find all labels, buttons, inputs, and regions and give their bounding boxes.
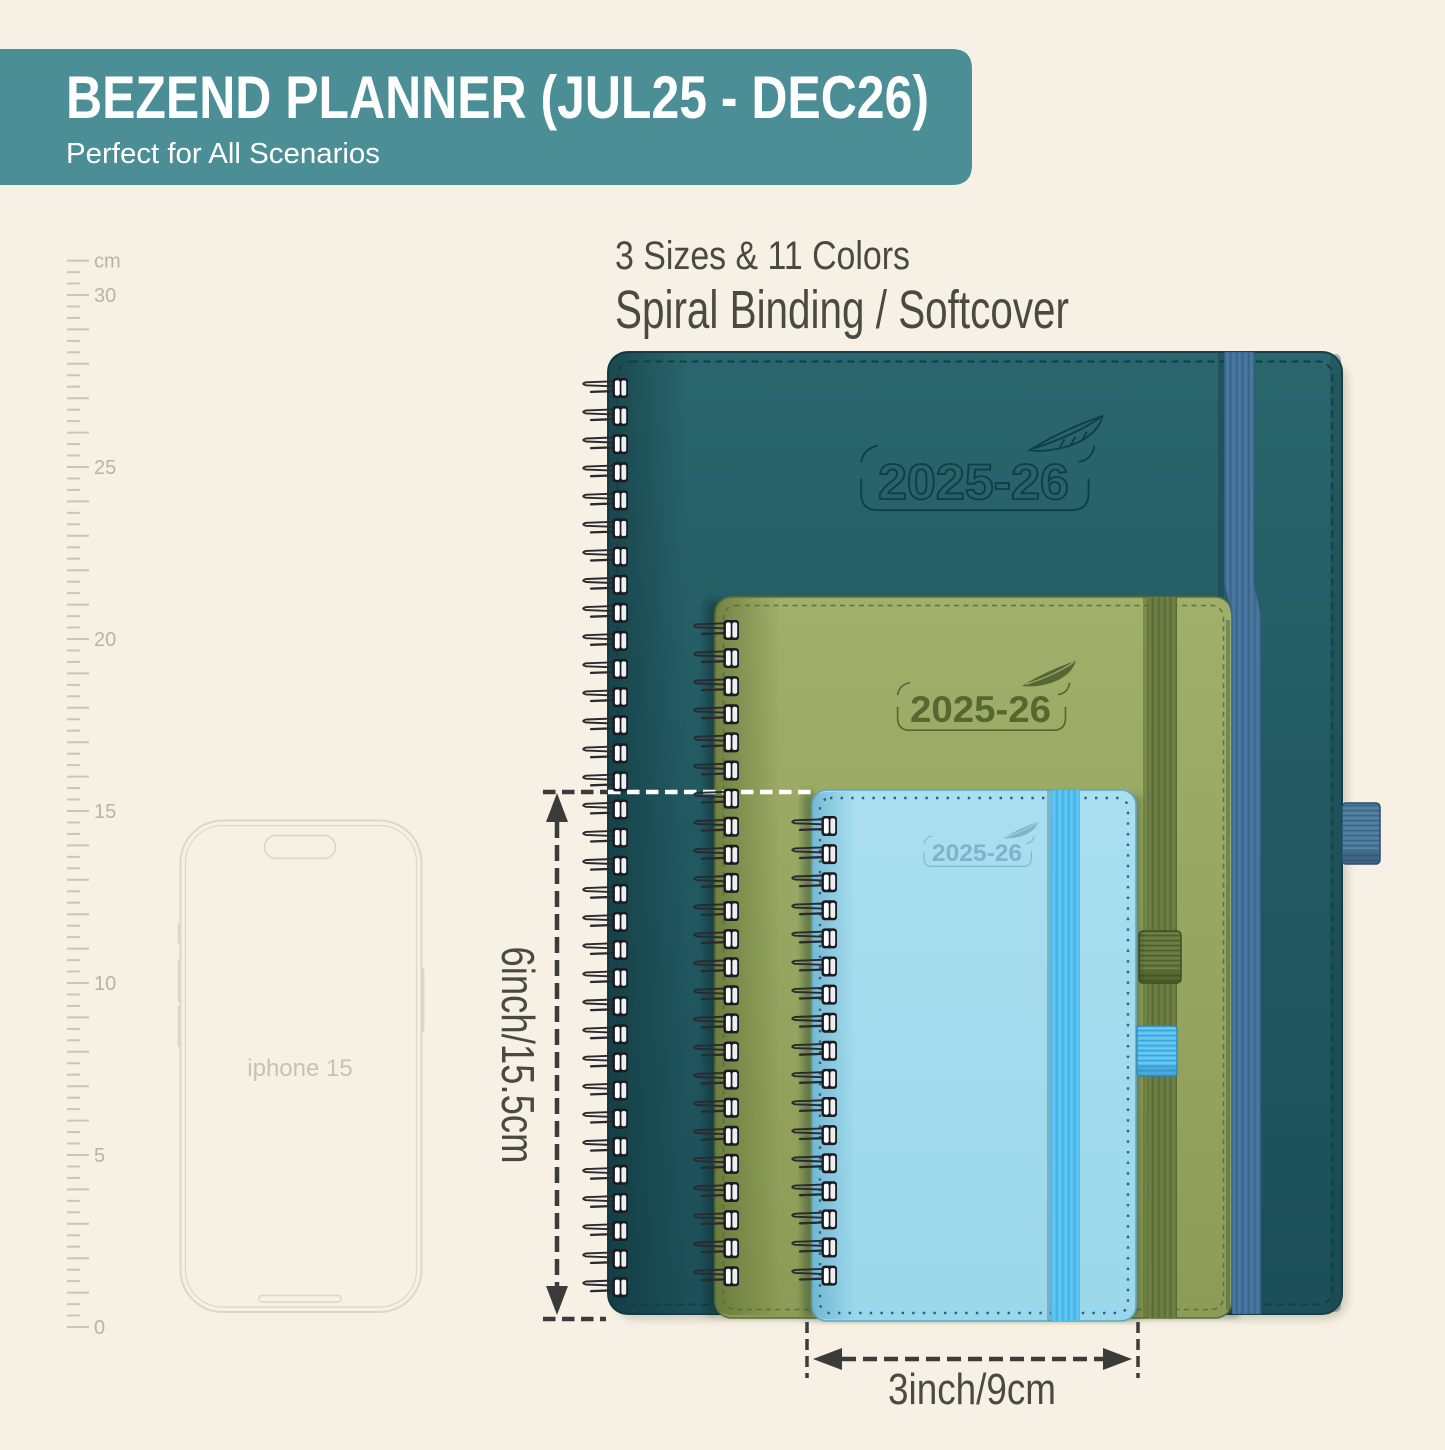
- svg-text:Spiral Binding / Softcover: Spiral Binding / Softcover: [615, 280, 1069, 340]
- svg-text:iphone 15: iphone 15: [247, 1055, 352, 1082]
- svg-text:BEZEND PLANNER (JUL25 - DEC26): BEZEND PLANNER (JUL25 - DEC26): [66, 64, 929, 131]
- svg-text:Perfect for All Scenarios: Perfect for All Scenarios: [66, 138, 380, 170]
- svg-text:5: 5: [94, 1145, 105, 1167]
- svg-text:15: 15: [94, 801, 116, 823]
- svg-text:30: 30: [94, 285, 116, 307]
- svg-text:2025-26: 2025-26: [910, 688, 1051, 730]
- svg-text:3 Sizes & 11 Colors: 3 Sizes & 11 Colors: [615, 234, 910, 278]
- svg-text:6inch/15.5cm: 6inch/15.5cm: [492, 947, 544, 1164]
- svg-text:10: 10: [94, 973, 116, 995]
- svg-text:3inch/9cm: 3inch/9cm: [888, 1365, 1056, 1414]
- svg-text:25: 25: [94, 457, 116, 479]
- svg-text:2025-26: 2025-26: [878, 453, 1069, 510]
- svg-text:0: 0: [94, 1317, 105, 1339]
- svg-text:2025-26: 2025-26: [932, 840, 1022, 867]
- svg-text:cm: cm: [94, 251, 121, 273]
- svg-text:20: 20: [94, 629, 116, 651]
